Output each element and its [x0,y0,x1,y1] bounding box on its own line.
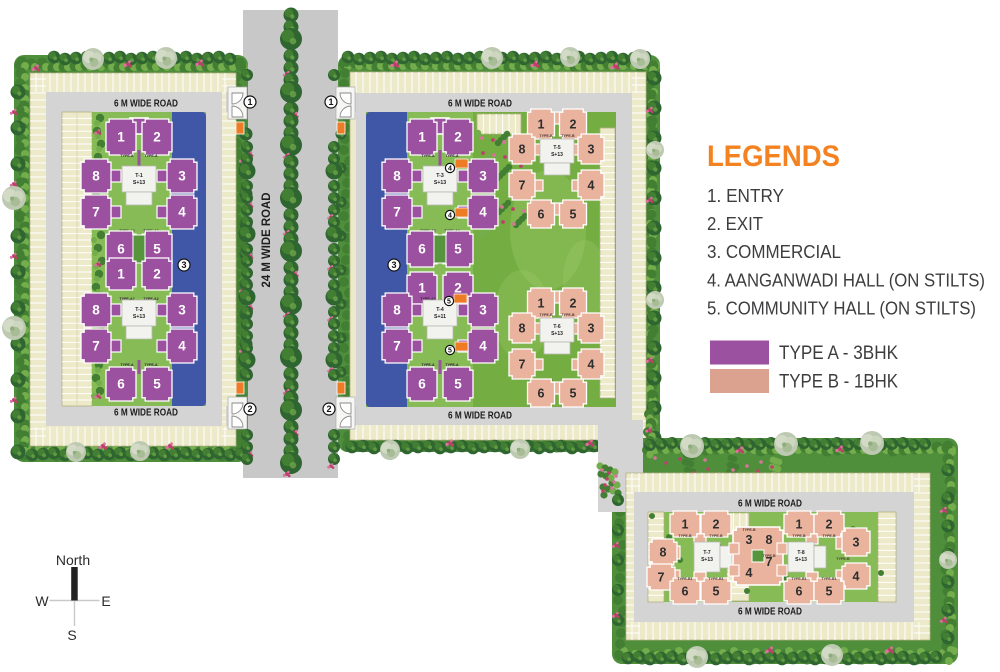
svg-text:8: 8 [393,303,401,318]
svg-text:TYPE-B: TYPE-B [561,134,575,138]
svg-text:1: 1 [796,517,803,531]
svg-text:TYPE-A: TYPE-A [144,154,158,158]
svg-text:6: 6 [796,584,803,598]
svg-text:6 M WIDE ROAD: 6 M WIDE ROAD [738,499,802,510]
svg-text:4: 4 [178,339,186,354]
svg-text:S+13: S+13 [133,314,145,320]
svg-text:4: 4 [746,566,753,580]
svg-text:S+13: S+13 [133,180,145,186]
svg-text:1: 1 [538,117,545,131]
svg-text:8: 8 [92,169,100,184]
svg-text:TYPE-A: TYPE-A [445,154,459,158]
svg-text:8: 8 [660,545,667,559]
svg-text:TYPE-B: TYPE-B [742,528,756,532]
svg-text:TYPE-B: TYPE-B [836,557,850,561]
svg-text:6: 6 [117,377,125,392]
svg-text:8: 8 [519,142,526,156]
svg-text:S: S [67,627,76,643]
svg-text:TYPE-B: TYPE-B [539,134,553,138]
svg-text:2: 2 [826,517,833,531]
svg-text:TYPE-B: TYPE-B [561,313,575,317]
svg-text:5: 5 [448,348,452,355]
svg-text:1. ENTRY: 1. ENTRY [707,185,784,206]
svg-text:TYPE-B: TYPE-B [539,313,553,317]
svg-text:4: 4 [588,178,595,192]
svg-text:2: 2 [247,404,252,414]
svg-text:1: 1 [538,296,545,310]
svg-text:6 M WIDE ROAD: 6 M WIDE ROAD [448,99,512,110]
svg-text:8: 8 [519,321,526,335]
svg-text:3: 3 [178,169,186,184]
svg-text:TYPE-B: TYPE-B [762,554,776,558]
svg-text:6 M WIDE ROAD: 6 M WIDE ROAD [448,411,512,422]
svg-text:3: 3 [178,303,186,318]
svg-text:3: 3 [588,142,595,156]
svg-text:6: 6 [418,242,426,257]
svg-text:2: 2 [570,296,577,310]
svg-text:TYPE-A: TYPE-A [120,154,134,158]
svg-text:4. AANGANWADI HALL (ON STILTS): 4. AANGANWADI HALL (ON STILTS) [707,270,985,291]
svg-text:7: 7 [519,357,526,371]
svg-text:3. COMMERCIAL: 3. COMMERCIAL [707,241,841,262]
svg-text:S+13: S+13 [551,152,563,158]
svg-text:7: 7 [658,570,665,584]
svg-text:8: 8 [766,533,773,547]
svg-text:6 M WIDE ROAD: 6 M WIDE ROAD [114,408,178,419]
svg-text:T-2: T-2 [135,307,143,313]
svg-text:1: 1 [247,97,252,107]
svg-text:S+13: S+13 [795,557,807,563]
svg-text:5: 5 [713,584,720,598]
svg-text:4: 4 [479,339,487,354]
svg-text:1: 1 [117,130,125,145]
svg-text:6: 6 [117,242,125,257]
svg-text:5: 5 [153,242,161,257]
svg-text:7: 7 [519,178,526,192]
svg-text:T-7: T-7 [703,550,710,556]
svg-text:4: 4 [448,213,452,220]
svg-text:3: 3 [588,321,595,335]
svg-text:4: 4 [448,166,452,173]
svg-text:5: 5 [570,207,577,221]
svg-text:TYPE-B: TYPE-B [678,534,692,538]
svg-text:2: 2 [570,117,577,131]
svg-text:4: 4 [588,357,595,371]
svg-text:3: 3 [853,535,860,549]
svg-text:6: 6 [418,377,426,392]
svg-text:T-1: T-1 [135,173,143,179]
svg-text:6 M WIDE ROAD: 6 M WIDE ROAD [114,99,178,110]
svg-text:TYPE-B1: TYPE-B1 [821,577,836,581]
svg-text:3: 3 [181,260,186,270]
svg-text:S+11: S+11 [434,314,446,320]
svg-text:T-4: T-4 [436,307,444,313]
svg-text:5. COMMUNITY HALL (ON STILTS): 5. COMMUNITY HALL (ON STILTS) [707,298,976,319]
svg-text:TYPE A - 3BHK: TYPE A - 3BHK [779,342,898,364]
svg-text:1: 1 [117,267,125,282]
svg-text:TYPE-B1: TYPE-B1 [677,577,692,581]
svg-text:6: 6 [538,386,545,400]
svg-text:1: 1 [328,97,333,107]
svg-text:6: 6 [538,207,545,221]
svg-text:7: 7 [393,339,401,354]
svg-text:5: 5 [454,242,462,257]
svg-text:4: 4 [178,205,186,220]
svg-text:T-8: T-8 [797,550,804,556]
svg-text:2: 2 [454,130,462,145]
svg-text:2: 2 [454,281,462,296]
svg-text:E: E [101,593,110,609]
svg-text:8: 8 [92,303,100,318]
svg-text:6 M WIDE ROAD: 6 M WIDE ROAD [738,607,802,618]
svg-text:7: 7 [92,205,100,220]
svg-text:TYPE-B: TYPE-B [709,534,723,538]
svg-text:5: 5 [447,299,451,306]
svg-text:5: 5 [454,377,462,392]
svg-text:T-6: T-6 [553,324,560,330]
svg-text:5: 5 [153,377,161,392]
svg-text:TYPE-B: TYPE-B [822,534,836,538]
svg-text:5: 5 [570,386,577,400]
svg-text:2: 2 [713,517,720,531]
svg-text:LEGENDS: LEGENDS [707,140,840,173]
svg-text:5: 5 [826,584,833,598]
svg-text:2: 2 [153,267,161,282]
svg-text:3: 3 [391,260,396,270]
svg-text:TYPE-B1: TYPE-B1 [708,577,723,581]
svg-text:S+13: S+13 [551,331,563,337]
svg-text:2: 2 [153,130,161,145]
svg-text:TYPE-B: TYPE-B [792,534,806,538]
svg-text:TYPE-B1: TYPE-B1 [791,577,806,581]
svg-text:W: W [35,593,49,609]
svg-text:TYPE-A: TYPE-A [421,154,435,158]
svg-text:2. EXIT: 2. EXIT [707,213,763,234]
svg-text:1: 1 [418,281,426,296]
svg-text:S+13: S+13 [701,557,713,563]
svg-text:1: 1 [682,517,689,531]
svg-text:4: 4 [853,569,860,583]
svg-text:S+13: S+13 [434,180,446,186]
svg-text:1: 1 [418,130,426,145]
svg-text:TYPE B - 1BHK: TYPE B - 1BHK [779,371,898,393]
svg-text:8: 8 [393,169,401,184]
svg-text:2: 2 [326,404,331,414]
svg-text:North: North [56,552,90,568]
svg-text:T-5: T-5 [553,145,560,151]
svg-text:T-3: T-3 [436,173,444,179]
svg-text:3: 3 [479,169,487,184]
svg-text:3: 3 [479,303,487,318]
svg-text:3: 3 [746,533,753,547]
svg-text:4: 4 [479,205,487,220]
svg-text:7: 7 [92,339,100,354]
svg-text:7: 7 [393,205,401,220]
svg-text:24 M WIDE ROAD: 24 M WIDE ROAD [261,193,273,288]
svg-text:6: 6 [682,584,689,598]
